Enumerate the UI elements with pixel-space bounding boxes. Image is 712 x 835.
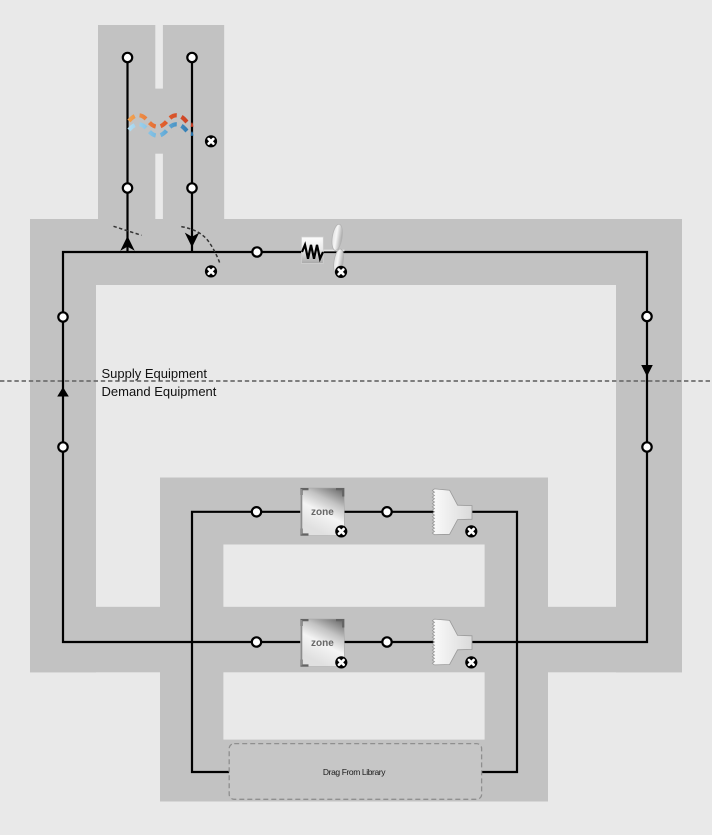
svg-text:Drag From Library: Drag From Library: [323, 767, 386, 777]
svg-text:Demand Equipment: Demand Equipment: [102, 384, 217, 399]
svg-text:zone: zone: [311, 507, 334, 518]
svg-text:Supply Equipment: Supply Equipment: [102, 366, 208, 381]
svg-text:zone: zone: [311, 638, 334, 649]
